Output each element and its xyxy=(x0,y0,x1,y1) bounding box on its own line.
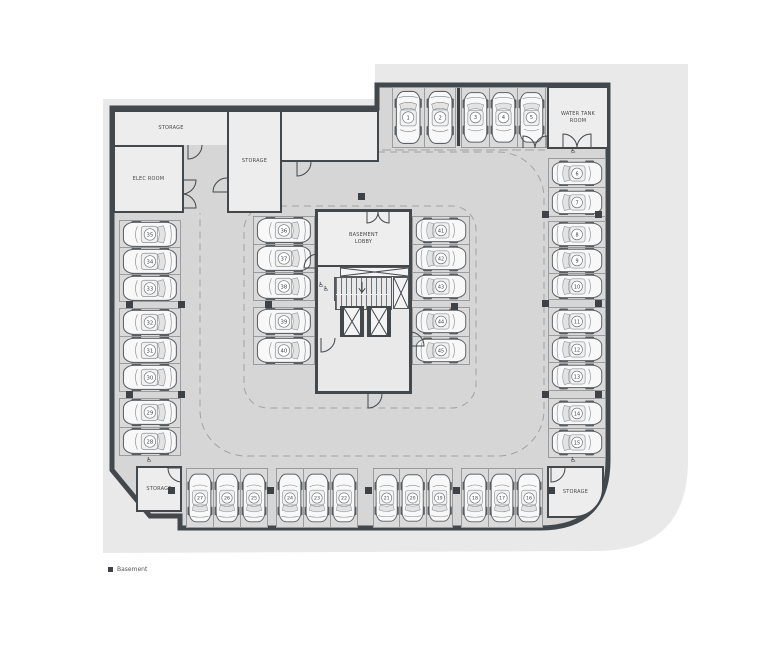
svg-text:4: 4 xyxy=(502,115,505,121)
parking-stall-2: 2 xyxy=(424,88,456,147)
svg-text:8: 8 xyxy=(575,232,578,238)
car-icon: 24 xyxy=(277,471,303,525)
car-icon: 19 xyxy=(427,471,452,525)
svg-text:1: 1 xyxy=(407,115,410,121)
svg-text:37: 37 xyxy=(281,256,288,262)
parking-stall-24: 24 xyxy=(277,469,303,527)
parking-stall-43: 43 xyxy=(413,272,469,300)
legend: Basement xyxy=(108,566,147,573)
accessible-icon: ♿ xyxy=(146,457,152,464)
room-upper-corridor xyxy=(280,110,379,162)
room-mid-storage: STORAGE xyxy=(227,110,282,213)
parking-group-mid-left-a: 363738 xyxy=(253,216,315,301)
parking-stall-31: 31 xyxy=(120,336,180,364)
svg-text:34: 34 xyxy=(147,259,154,265)
parking-stall-23: 23 xyxy=(303,469,330,527)
car-icon: 28 xyxy=(122,427,178,455)
parking-group-mid-left-b: 3940 xyxy=(253,307,315,365)
svg-text:44: 44 xyxy=(438,320,444,326)
accessible-icon: ♿ xyxy=(570,457,576,464)
car-icon: 23 xyxy=(304,471,330,525)
room-label: STORAGE xyxy=(158,125,183,132)
svg-text:43: 43 xyxy=(438,284,444,290)
vent-grille xyxy=(340,267,409,277)
parking-stall-34: 34 xyxy=(120,247,180,274)
car-icon: 16 xyxy=(516,471,542,525)
parking-stall-11: 11 xyxy=(549,308,605,335)
car-icon: 18 xyxy=(462,471,488,525)
car-icon: 34 xyxy=(122,247,178,274)
svg-text:3: 3 xyxy=(474,115,477,121)
svg-text:20: 20 xyxy=(410,496,416,502)
column-pillar xyxy=(548,487,555,494)
column-pillar xyxy=(168,487,175,494)
car-icon: 8 xyxy=(551,222,603,247)
parking-stall-18: 18 xyxy=(462,469,488,527)
svg-text:33: 33 xyxy=(147,286,154,292)
parking-group-mid-right-b: 4445 xyxy=(412,307,470,365)
parking-stall-3: 3 xyxy=(462,88,489,147)
svg-text:12: 12 xyxy=(574,347,580,353)
parking-stall-32: 32 xyxy=(120,309,180,336)
column-pillar xyxy=(542,300,549,307)
parking-group-left-a: 353433 xyxy=(119,220,181,302)
svg-text:18: 18 xyxy=(472,496,478,502)
parking-group-right-d: 1415 xyxy=(548,398,606,458)
parking-stall-29: 29 xyxy=(120,399,180,427)
svg-text:22: 22 xyxy=(341,496,347,502)
parking-stall-15: 15 xyxy=(549,428,605,458)
parking-group-right-b: 8910 xyxy=(548,221,606,300)
svg-text:23: 23 xyxy=(314,496,320,502)
car-icon: 10 xyxy=(551,273,603,299)
parking-group-top-b: 345 xyxy=(461,87,546,148)
parking-stall-5: 5 xyxy=(517,88,545,147)
parking-stall-37: 37 xyxy=(254,244,314,272)
parking-stall-10: 10 xyxy=(549,273,605,299)
car-icon: 37 xyxy=(256,244,312,272)
car-icon: 6 xyxy=(551,160,603,187)
column-pillar xyxy=(451,303,458,310)
svg-text:41: 41 xyxy=(438,228,444,234)
column-pillar xyxy=(453,487,460,494)
parking-stall-28: 28 xyxy=(120,427,180,456)
service-shaft xyxy=(393,277,409,309)
svg-text:7: 7 xyxy=(575,200,578,206)
car-icon: 22 xyxy=(331,471,357,525)
core-block: BASEMENT LOBBY ♿ xyxy=(315,209,412,394)
car-icon: 2 xyxy=(426,90,454,145)
car-icon: 36 xyxy=(256,217,312,244)
parking-stall-25: 25 xyxy=(240,469,267,527)
parking-group-bottom-a: 272625 xyxy=(186,468,268,528)
car-icon: 3 xyxy=(462,90,489,145)
parking-stall-8: 8 xyxy=(549,222,605,247)
parking-stall-41: 41 xyxy=(413,217,469,244)
column-pillar xyxy=(595,300,602,307)
svg-text:45: 45 xyxy=(438,348,444,354)
car-icon: 17 xyxy=(489,471,515,525)
svg-text:16: 16 xyxy=(526,496,532,502)
parking-stall-16: 16 xyxy=(515,469,542,527)
car-icon: 5 xyxy=(518,90,545,145)
car-icon: 26 xyxy=(214,471,240,525)
svg-text:27: 27 xyxy=(197,496,203,502)
car-icon: 39 xyxy=(256,308,312,336)
svg-text:21: 21 xyxy=(384,496,390,502)
svg-text:15: 15 xyxy=(574,441,580,447)
parking-stall-22: 22 xyxy=(330,469,357,527)
parking-group-bottom-b: 242322 xyxy=(276,468,358,528)
car-icon: 35 xyxy=(122,221,178,247)
parking-stall-35: 35 xyxy=(120,221,180,247)
accessible-icon: ♿ xyxy=(318,282,324,289)
svg-text:2: 2 xyxy=(438,115,441,121)
room-storage-bottom-right: STORAGE xyxy=(547,466,604,518)
svg-text:10: 10 xyxy=(574,284,580,290)
column-pillar xyxy=(126,391,133,398)
car-icon: 1 xyxy=(394,90,422,145)
room-elec: ELEC ROOM xyxy=(113,145,184,213)
accessible-icon: ♿ xyxy=(570,148,576,155)
svg-text:31: 31 xyxy=(147,348,154,354)
car-icon: 4 xyxy=(490,90,517,145)
floor-plan-canvas: STORAGE ELEC ROOM STORAGE WATER TANKROOM… xyxy=(0,0,765,647)
car-icon: 45 xyxy=(415,337,467,364)
svg-text:38: 38 xyxy=(281,284,288,290)
parking-stall-19: 19 xyxy=(426,469,452,527)
parking-stall-45: 45 xyxy=(413,336,469,365)
svg-text:24: 24 xyxy=(287,496,293,502)
parking-group-top-a: 12 xyxy=(392,87,456,148)
parking-group-right-c: 111213 xyxy=(548,307,606,391)
svg-text:11: 11 xyxy=(574,319,580,325)
car-icon: 11 xyxy=(551,308,603,335)
column-pillar xyxy=(365,487,372,494)
car-icon: 31 xyxy=(122,336,178,364)
svg-text:9: 9 xyxy=(575,258,578,264)
legend-label: Basement xyxy=(117,566,147,573)
svg-text:35: 35 xyxy=(147,232,154,238)
svg-text:14: 14 xyxy=(574,411,580,417)
car-icon: 41 xyxy=(415,217,467,244)
car-icon: 20 xyxy=(400,471,425,525)
elevator-2 xyxy=(367,306,391,337)
svg-text:39: 39 xyxy=(281,320,288,326)
svg-text:26: 26 xyxy=(224,496,230,502)
column-pillar xyxy=(178,301,185,308)
column-pillar xyxy=(126,301,133,308)
legend-swatch xyxy=(108,567,113,572)
car-icon: 25 xyxy=(241,471,267,525)
parking-stall-36: 36 xyxy=(254,217,314,244)
svg-text:36: 36 xyxy=(281,228,288,234)
car-icon: 38 xyxy=(256,272,312,300)
elevator-1 xyxy=(340,306,364,337)
parking-stall-12: 12 xyxy=(549,335,605,363)
parking-group-left-b: 323130 xyxy=(119,308,181,392)
car-icon: 21 xyxy=(374,471,399,525)
parking-group-bottom-d: 181716 xyxy=(461,468,543,528)
parking-group-right-a: 67 xyxy=(548,158,606,217)
parking-group-bottom-c: 212019 xyxy=(373,468,453,528)
car-icon: 32 xyxy=(122,309,178,336)
parking-stall-13: 13 xyxy=(549,362,605,390)
parking-stall-21: 21 xyxy=(374,469,399,527)
parking-stall-4: 4 xyxy=(489,88,517,147)
svg-text:17: 17 xyxy=(499,496,505,502)
car-icon: 33 xyxy=(122,274,178,301)
stair-direction-arrow xyxy=(358,281,366,294)
room-label: STORAGE xyxy=(563,489,588,496)
car-icon: 44 xyxy=(415,308,467,335)
wall-stub xyxy=(457,88,460,146)
column-pillar xyxy=(542,391,549,398)
car-icon: 30 xyxy=(122,363,178,391)
svg-text:5: 5 xyxy=(530,115,533,121)
parking-stall-14: 14 xyxy=(549,399,605,428)
svg-text:19: 19 xyxy=(436,496,442,502)
entry-ramp-corridor xyxy=(182,145,229,213)
car-icon: 14 xyxy=(551,400,603,427)
car-icon: 29 xyxy=(122,399,178,427)
svg-text:40: 40 xyxy=(281,348,288,354)
parking-stall-30: 30 xyxy=(120,363,180,391)
parking-stall-27: 27 xyxy=(187,469,213,527)
parking-stall-39: 39 xyxy=(254,308,314,336)
parking-group-mid-right-a: 414243 xyxy=(412,216,470,301)
column-pillar xyxy=(542,211,549,218)
room-label: STORAGE xyxy=(242,158,267,165)
lobby-label-line1: BASEMENT xyxy=(349,232,378,239)
car-icon: 13 xyxy=(551,363,603,390)
room-storage-bottom-left: STORAGE xyxy=(136,466,182,512)
svg-text:25: 25 xyxy=(251,496,257,502)
car-icon: 12 xyxy=(551,336,603,363)
car-icon: 42 xyxy=(415,245,467,272)
car-icon: 43 xyxy=(415,273,467,300)
svg-text:28: 28 xyxy=(147,439,154,445)
svg-text:29: 29 xyxy=(147,411,154,417)
lift-lobby: BASEMENT LOBBY xyxy=(318,212,409,267)
parking-stall-1: 1 xyxy=(393,88,424,147)
column-pillar xyxy=(595,391,602,398)
svg-text:42: 42 xyxy=(438,256,444,262)
column-pillar xyxy=(178,391,185,398)
parking-stall-20: 20 xyxy=(399,469,425,527)
room-label: WATER TANKROOM xyxy=(561,111,595,125)
column-pillar xyxy=(265,301,272,308)
svg-text:6: 6 xyxy=(575,171,578,177)
parking-group-left-c: 2928 xyxy=(119,398,181,456)
car-icon: 40 xyxy=(256,336,312,364)
room-water-tank: WATER TANKROOM xyxy=(547,86,609,149)
svg-text:30: 30 xyxy=(147,376,154,382)
parking-stall-9: 9 xyxy=(549,247,605,273)
parking-stall-40: 40 xyxy=(254,336,314,365)
svg-text:13: 13 xyxy=(574,374,580,380)
lobby-label-line2: LOBBY xyxy=(355,239,372,246)
room-label: ELEC ROOM xyxy=(133,176,165,183)
parking-stall-42: 42 xyxy=(413,244,469,272)
column-pillar xyxy=(267,487,274,494)
parking-stall-17: 17 xyxy=(488,469,515,527)
car-icon: 15 xyxy=(551,429,603,456)
parking-stall-6: 6 xyxy=(549,159,605,187)
room-top-storage: STORAGE xyxy=(113,110,229,147)
parking-stall-38: 38 xyxy=(254,272,314,300)
car-icon: 9 xyxy=(551,247,603,273)
svg-text:32: 32 xyxy=(147,320,154,326)
parking-stall-33: 33 xyxy=(120,274,180,301)
column-pillar xyxy=(595,211,602,218)
parking-stall-26: 26 xyxy=(213,469,240,527)
parking-stall-44: 44 xyxy=(413,308,469,336)
car-icon: 27 xyxy=(187,471,213,525)
column-pillar xyxy=(358,193,365,200)
